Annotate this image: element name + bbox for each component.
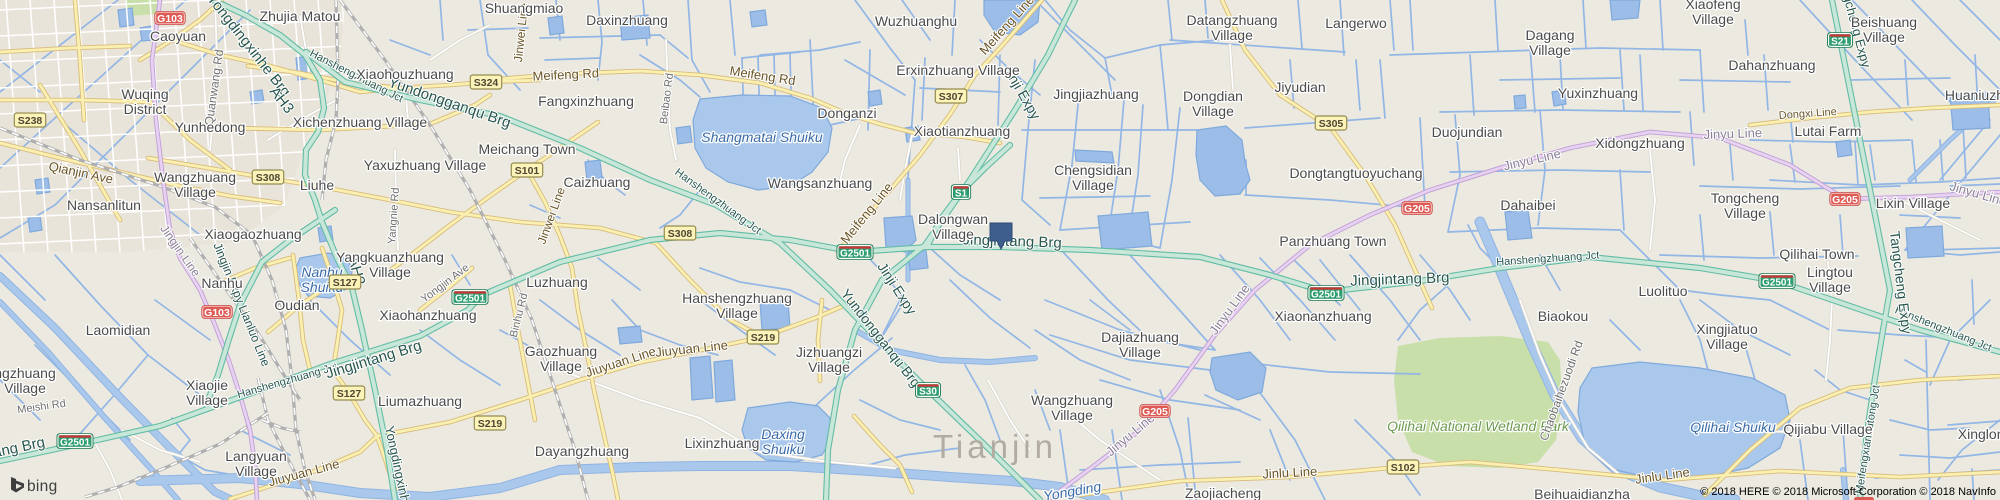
svg-text:Yuxinzhuang: Yuxinzhuang <box>1558 85 1638 101</box>
svg-text:Nansanlitun: Nansanlitun <box>67 197 141 213</box>
svg-text:Xinglongzhuang: Xinglongzhuang <box>1958 426 2000 442</box>
svg-text:Village: Village <box>540 358 582 374</box>
svg-text:Lingtou: Lingtou <box>1807 264 1853 280</box>
svg-text:Yaxuzhuang Village: Yaxuzhuang Village <box>364 157 487 173</box>
svg-text:Hanshengzhuang: Hanshengzhuang <box>682 290 792 306</box>
svg-text:Xingjiatuo: Xingjiatuo <box>1696 321 1758 337</box>
svg-text:Laomidian: Laomidian <box>86 322 151 338</box>
svg-text:Shuangmiao: Shuangmiao <box>485 0 564 16</box>
svg-text:Village: Village <box>716 305 758 321</box>
svg-text:Tianjin: Tianjin <box>933 428 1057 465</box>
svg-text:Qilihai Town: Qilihai Town <box>1779 246 1854 262</box>
svg-text:Village: Village <box>1809 279 1851 295</box>
svg-text:G205: G205 <box>1404 203 1430 215</box>
svg-text:G103: G103 <box>204 307 230 319</box>
svg-text:Village: Village <box>932 226 974 242</box>
svg-text:S101: S101 <box>515 165 540 177</box>
svg-text:Caizhuang: Caizhuang <box>564 174 631 190</box>
svg-text:Village: Village <box>174 184 216 200</box>
svg-text:Xiaotianzhuang: Xiaotianzhuang <box>914 123 1011 139</box>
svg-text:bing: bing <box>27 478 58 495</box>
svg-text:Oudian: Oudian <box>274 297 319 313</box>
svg-text:Dahanzhuang: Dahanzhuang <box>1728 57 1815 73</box>
svg-text:G2501: G2501 <box>1762 277 1792 288</box>
svg-text:Panzhuang Town: Panzhuang Town <box>1279 233 1386 249</box>
svg-text:Gaozhuang: Gaozhuang <box>525 343 597 359</box>
svg-text:Village: Village <box>1211 27 1253 43</box>
svg-text:Dayangzhuang: Dayangzhuang <box>535 443 629 459</box>
svg-text:Village: Village <box>1192 103 1234 119</box>
svg-text:S102: S102 <box>1391 462 1416 474</box>
svg-text:Xiaohanzhuang: Xiaohanzhuang <box>379 307 476 323</box>
svg-text:Jinlu Line: Jinlu Line <box>1262 464 1318 482</box>
svg-text:Qilihai Shuiku: Qilihai Shuiku <box>1690 419 1776 435</box>
svg-text:Village: Village <box>808 359 850 375</box>
svg-text:Luzhuang: Luzhuang <box>526 274 588 290</box>
svg-text:S238: S238 <box>18 115 43 127</box>
svg-text:Village: Village <box>1051 407 1093 423</box>
svg-text:Fangxinzhuang: Fangxinzhuang <box>538 93 634 109</box>
svg-text:Lixin Village: Lixin Village <box>1876 195 1951 211</box>
svg-text:Liumazhuang: Liumazhuang <box>378 393 462 409</box>
svg-text:Huaniuzhuang: Huaniuzhuang <box>1945 87 2000 103</box>
svg-text:Village: Village <box>1072 177 1114 193</box>
svg-text:Jiyudian: Jiyudian <box>1274 79 1325 95</box>
svg-text:S30: S30 <box>919 386 937 397</box>
svg-text:Beishuang: Beishuang <box>1851 14 1917 30</box>
svg-text:District: District <box>124 101 167 117</box>
svg-text:G2501: G2501 <box>60 437 90 448</box>
svg-text:G205: G205 <box>1832 194 1858 206</box>
svg-text:Village: Village <box>186 392 228 408</box>
svg-text:Jizhuangzi: Jizhuangzi <box>796 344 862 360</box>
svg-text:Wuqing: Wuqing <box>121 86 168 102</box>
svg-text:S219: S219 <box>478 418 503 430</box>
svg-text:Village: Village <box>4 380 46 396</box>
svg-text:Xiaogaozhuang: Xiaogaozhuang <box>204 226 301 242</box>
svg-text:Caoyuan: Caoyuan <box>150 28 206 44</box>
svg-text:Daxinzhuang: Daxinzhuang <box>586 12 668 28</box>
svg-text:Xiaojie: Xiaojie <box>186 377 228 393</box>
svg-text:S127: S127 <box>333 277 358 289</box>
svg-text:© 2018 HERE © 2018 Microsoft C: © 2018 HERE © 2018 Microsoft Corporation… <box>1700 486 1996 498</box>
svg-text:S305: S305 <box>1319 118 1344 130</box>
svg-text:Jingjintang Brg: Jingjintang Brg <box>1350 269 1450 289</box>
svg-text:Zhujia Matou: Zhujia Matou <box>260 8 341 24</box>
svg-text:Dahaibei: Dahaibei <box>1500 197 1555 213</box>
svg-text:Langyuan: Langyuan <box>225 448 287 464</box>
svg-text:G205: G205 <box>1142 406 1168 418</box>
svg-text:G103: G103 <box>157 13 183 25</box>
svg-text:S219: S219 <box>751 332 776 344</box>
svg-text:Xidongzhuang: Xidongzhuang <box>1595 135 1685 151</box>
svg-text:S21: S21 <box>1831 36 1849 47</box>
svg-text:Village: Village <box>1119 344 1161 360</box>
svg-text:Village: Village <box>369 264 411 280</box>
svg-text:Dongdian: Dongdian <box>1183 88 1243 104</box>
svg-text:S1: S1 <box>955 188 968 199</box>
svg-text:Wangzhuang: Wangzhuang <box>1031 392 1113 408</box>
svg-text:Village: Village <box>1863 29 1905 45</box>
svg-text:Nanhu: Nanhu <box>201 275 242 291</box>
svg-text:Qijiabu Village: Qijiabu Village <box>1783 421 1872 437</box>
svg-text:Xiaonanzhuang: Xiaonanzhuang <box>1274 308 1371 324</box>
svg-text:S308: S308 <box>668 228 693 240</box>
svg-text:Xichenzhuang Village: Xichenzhuang Village <box>293 114 428 130</box>
svg-text:Datangzhuang: Datangzhuang <box>1186 12 1277 28</box>
svg-text:Village: Village <box>235 463 277 479</box>
svg-text:Langerwo: Langerwo <box>1325 15 1387 31</box>
svg-text:Jinyu Line: Jinyu Line <box>1703 125 1762 142</box>
svg-text:Shuiku: Shuiku <box>762 441 805 457</box>
svg-text:Lutai Farm: Lutai Farm <box>1795 123 1862 139</box>
svg-text:Wangsanzhuang: Wangsanzhuang <box>768 175 873 191</box>
svg-text:Dalongwan: Dalongwan <box>918 211 988 227</box>
svg-text:Beihuaidianzha: Beihuaidianzha <box>1534 486 1630 500</box>
svg-text:Zaojiacheng: Zaojiacheng <box>1185 485 1261 500</box>
svg-text:Liuhe: Liuhe <box>300 177 334 193</box>
svg-text:Village: Village <box>1692 11 1734 27</box>
svg-text:Xiaohouzhuang: Xiaohouzhuang <box>356 66 453 82</box>
svg-text:Yunhedong: Yunhedong <box>175 119 246 135</box>
svg-text:Wuzhuanghu: Wuzhuanghu <box>875 13 957 29</box>
svg-text:Jingjiazhuang: Jingjiazhuang <box>1053 86 1139 102</box>
svg-text:ngzhuang: ngzhuang <box>0 365 56 381</box>
svg-text:G2501: G2501 <box>1311 289 1341 300</box>
svg-text:Village: Village <box>1724 205 1766 221</box>
svg-text:Luolituo: Luolituo <box>1638 283 1687 299</box>
svg-text:S308: S308 <box>256 172 281 184</box>
svg-text:Daxing: Daxing <box>761 426 805 442</box>
svg-text:S127: S127 <box>337 388 362 400</box>
svg-text:G2501: G2501 <box>840 248 870 259</box>
svg-text:S307: S307 <box>939 91 964 103</box>
svg-text:Shangmatai Shuiku: Shangmatai Shuiku <box>701 129 823 145</box>
svg-text:Duojundian: Duojundian <box>1432 124 1503 140</box>
svg-text:Dongtangtuoyuchang: Dongtangtuoyuchang <box>1289 165 1422 181</box>
svg-text:Village: Village <box>1706 336 1748 352</box>
svg-text:G2501: G2501 <box>455 293 485 304</box>
svg-text:Biaokou: Biaokou <box>1538 308 1589 324</box>
svg-text:Chengsidian: Chengsidian <box>1054 162 1132 178</box>
svg-text:Yangkuanzhuang: Yangkuanzhuang <box>336 249 444 265</box>
svg-text:Erxinzhuang Village: Erxinzhuang Village <box>896 62 1020 78</box>
svg-text:Donganzi: Donganzi <box>817 105 876 121</box>
svg-text:Meichang Town: Meichang Town <box>478 141 575 157</box>
svg-text:Village: Village <box>1529 42 1571 58</box>
svg-text:Wangzhuang: Wangzhuang <box>154 169 236 185</box>
svg-text:Dagang: Dagang <box>1525 27 1574 43</box>
svg-text:Lixinzhuang: Lixinzhuang <box>685 435 760 451</box>
svg-text:Tongcheng: Tongcheng <box>1711 190 1780 206</box>
svg-text:Dajiazhuang: Dajiazhuang <box>1101 329 1179 345</box>
svg-text:S324: S324 <box>474 77 499 89</box>
